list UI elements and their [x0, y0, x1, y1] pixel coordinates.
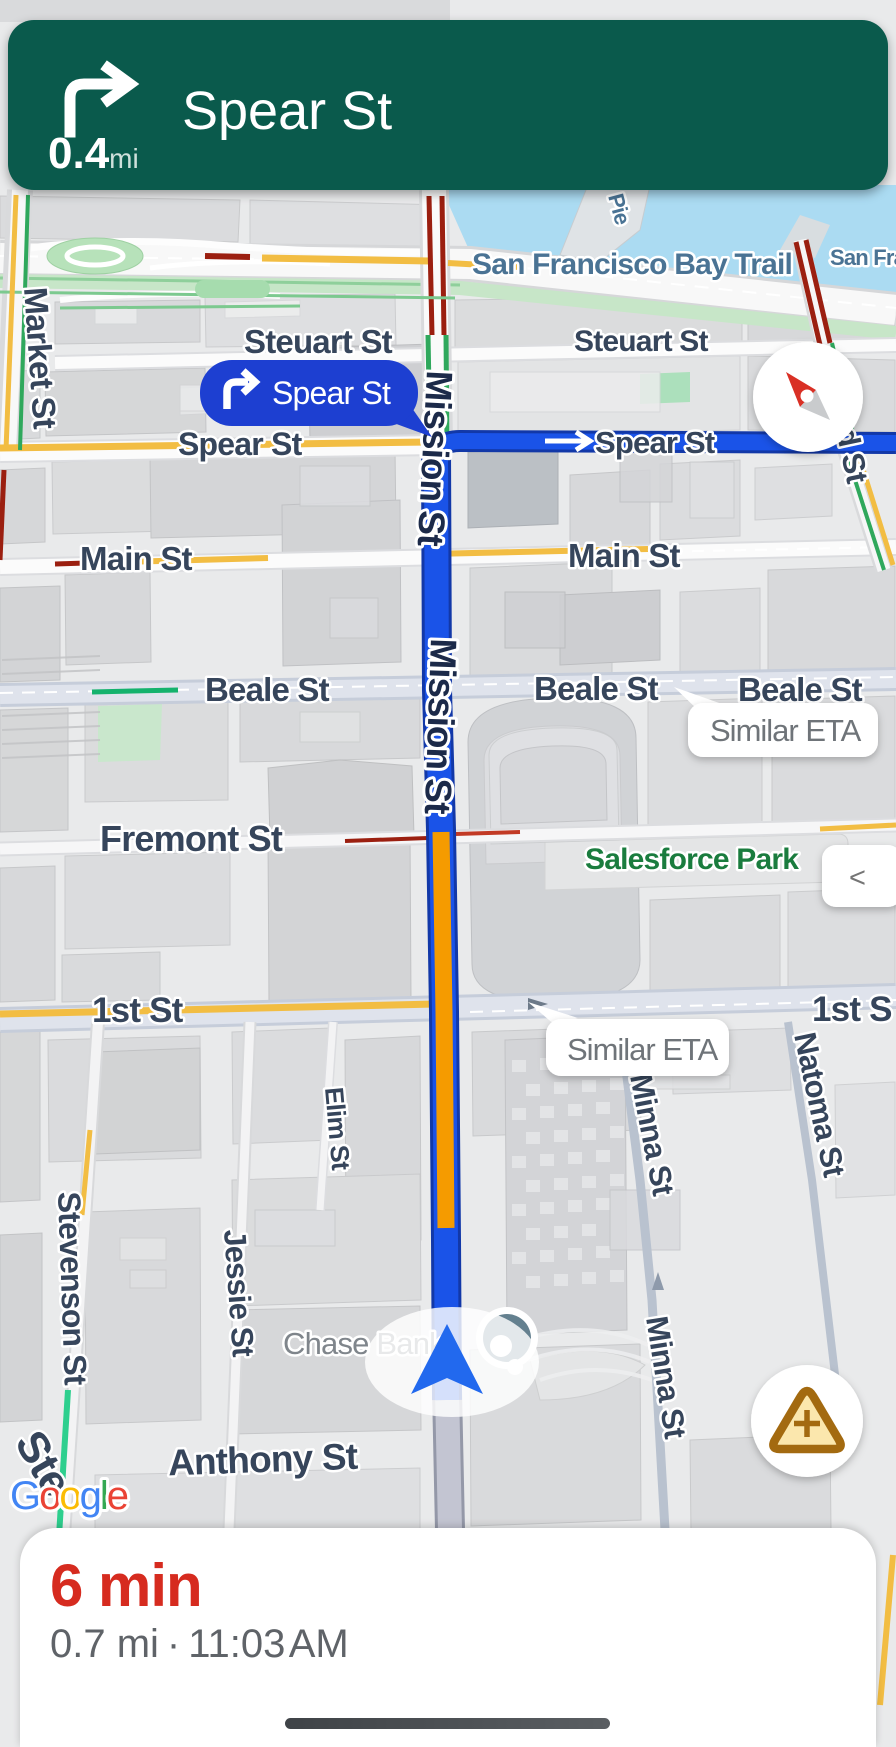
- svg-text:Anthony St: Anthony St: [167, 1436, 358, 1484]
- svg-text:Steuart St: Steuart St: [244, 323, 393, 360]
- svg-text:Mission St: Mission St: [417, 638, 464, 815]
- svg-text:Spear St: Spear St: [595, 425, 715, 460]
- svg-text:San Francisco Bay Trail: San Francisco Bay Trail: [472, 248, 792, 281]
- svg-text:Spear St: Spear St: [272, 375, 391, 411]
- svg-text:Salesforce Park: Salesforce Park: [585, 843, 799, 876]
- svg-text:Beale St: Beale St: [534, 670, 659, 707]
- svg-text:San Fran: San Fran: [830, 245, 896, 270]
- svg-text:Spear St: Spear St: [178, 426, 303, 462]
- svg-text:Google: Google: [10, 1474, 128, 1518]
- svg-text:Beale St: Beale St: [738, 671, 863, 708]
- svg-text:Similar ETA: Similar ETA: [710, 713, 862, 748]
- svg-text:Main St: Main St: [568, 537, 681, 574]
- svg-text:Stevenson St: Stevenson St: [51, 1191, 94, 1386]
- svg-text:Fremont St: Fremont St: [100, 818, 283, 859]
- svg-text:1st St: 1st St: [92, 991, 184, 1030]
- svg-text:Steuart St: Steuart St: [574, 325, 709, 358]
- svg-text:Similar ETA: Similar ETA: [567, 1032, 719, 1067]
- svg-text:1st S: 1st S: [812, 990, 892, 1029]
- svg-text:Beale St: Beale St: [205, 671, 330, 708]
- svg-text:<: <: [849, 862, 866, 894]
- svg-text:Main St: Main St: [80, 540, 193, 577]
